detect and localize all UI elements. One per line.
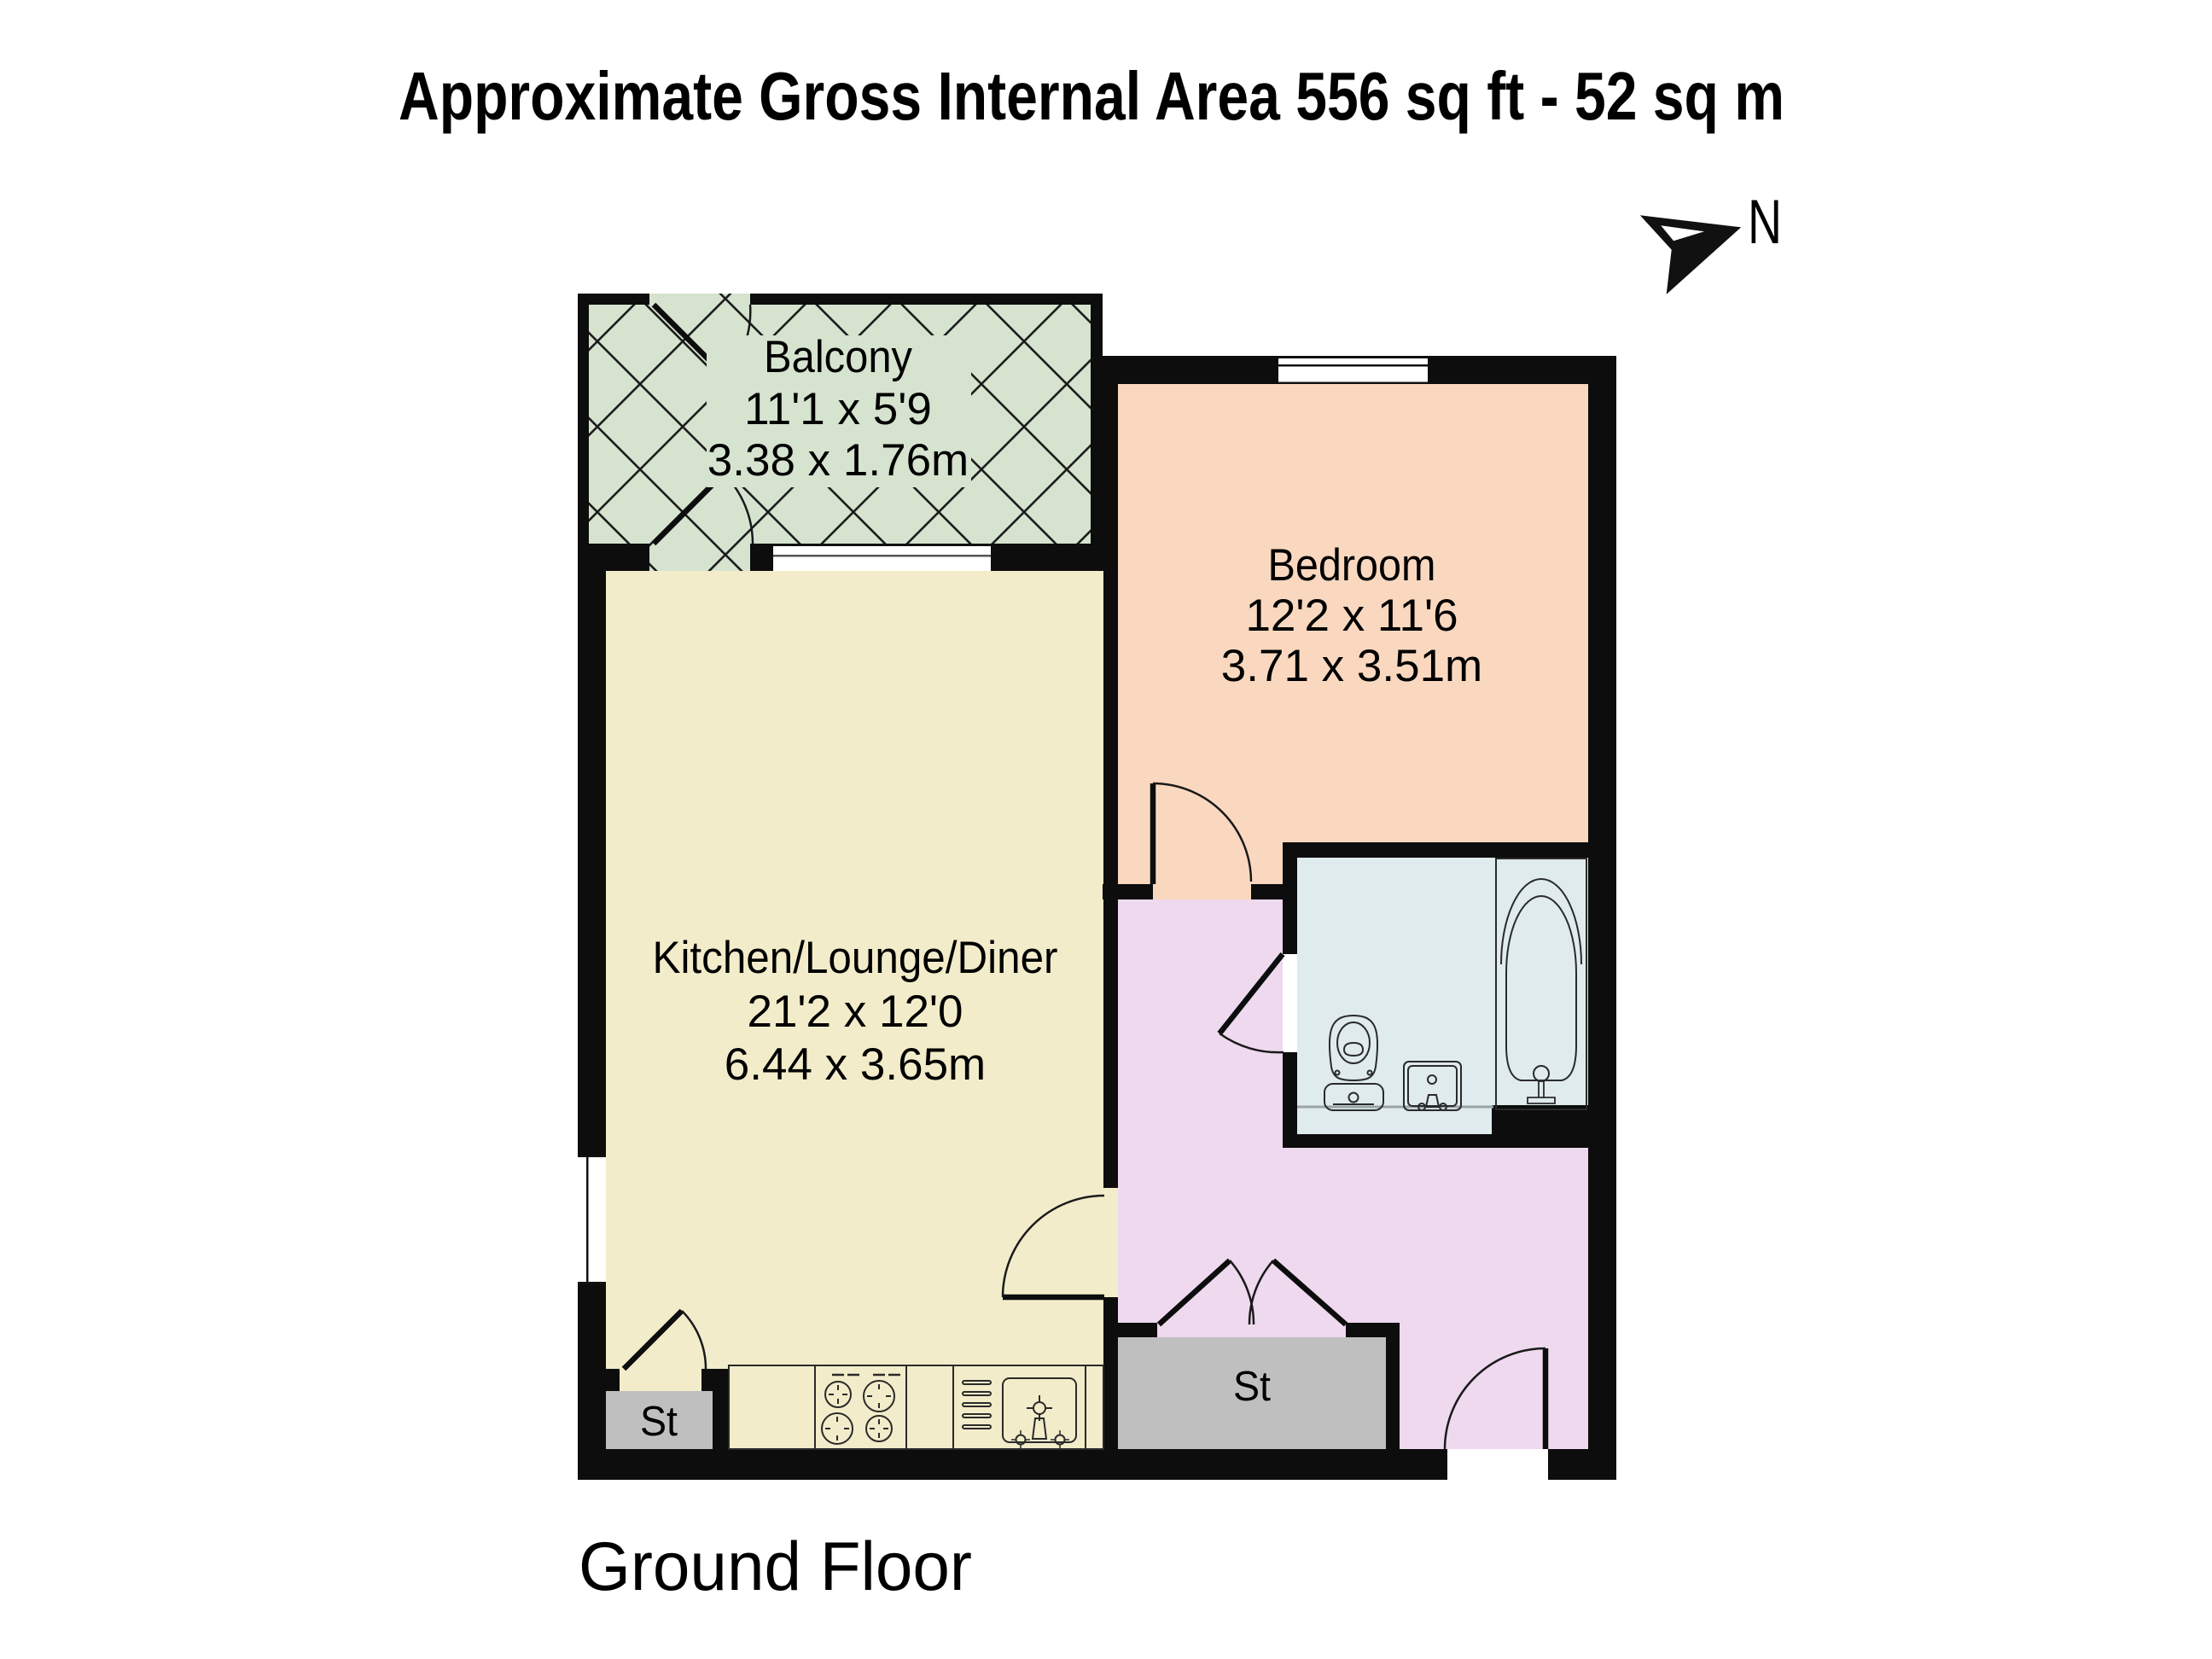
svg-text:Ground Floor: Ground Floor (579, 1528, 972, 1605)
svg-text:6.44 x 3.65m: 6.44 x 3.65m (725, 1039, 986, 1090)
svg-text:12'2 x 11'6: 12'2 x 11'6 (1245, 591, 1458, 641)
svg-text:3.71 x 3.51m: 3.71 x 3.51m (1221, 641, 1482, 691)
svg-text:21'2 x 12'0: 21'2 x 12'0 (747, 987, 963, 1037)
svg-text:Approximate Gross Internal Are: Approximate Gross Internal Area 556 sq f… (399, 58, 1784, 134)
svg-text:Balcony: Balcony (764, 332, 912, 382)
svg-text:Kitchen/Lounge/Diner: Kitchen/Lounge/Diner (653, 933, 1058, 983)
svg-text:3.38 x 1.76m: 3.38 x 1.76m (707, 435, 969, 486)
svg-text:11'1 x 5'9: 11'1 x 5'9 (744, 384, 932, 434)
svg-text:Bedroom: Bedroom (1268, 540, 1436, 591)
svg-text:St: St (640, 1399, 678, 1445)
svg-text:St: St (1233, 1364, 1271, 1410)
svg-text:N: N (1748, 188, 1782, 257)
